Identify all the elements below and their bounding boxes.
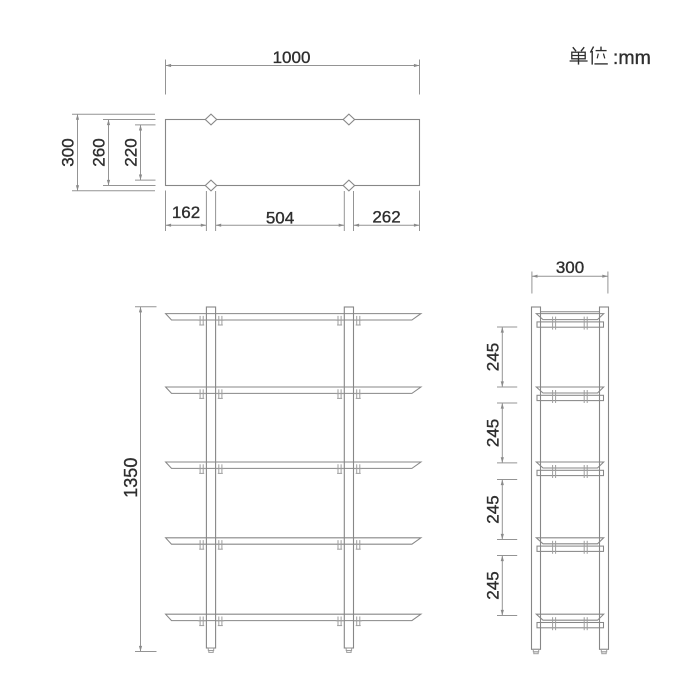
svg-text:1350: 1350: [121, 458, 141, 498]
svg-text:245: 245: [484, 495, 503, 523]
svg-text:300: 300: [59, 138, 78, 166]
svg-text:262: 262: [372, 208, 400, 227]
svg-text:260: 260: [90, 138, 109, 166]
svg-text:245: 245: [484, 419, 503, 447]
svg-text:220: 220: [122, 138, 141, 166]
svg-text:300: 300: [556, 258, 584, 277]
svg-text:1000: 1000: [273, 48, 311, 67]
svg-text:504: 504: [266, 209, 294, 228]
svg-text::mm: :mm: [608, 47, 651, 69]
svg-text:162: 162: [172, 203, 200, 222]
svg-text:245: 245: [484, 571, 503, 599]
svg-text:245: 245: [484, 343, 503, 371]
